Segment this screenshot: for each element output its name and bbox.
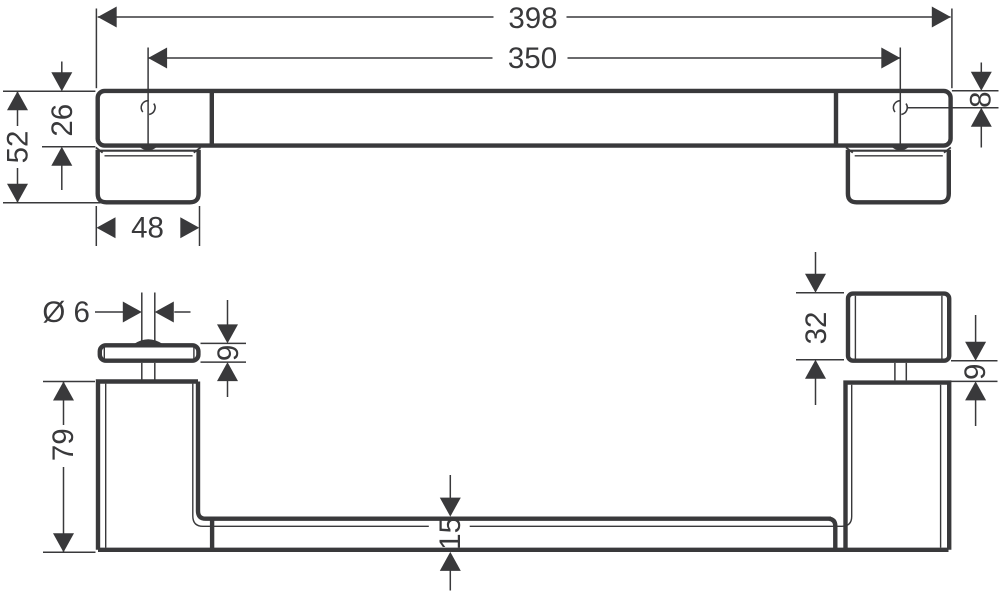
svg-text:Ø 6: Ø 6 (42, 296, 90, 329)
svg-text:52: 52 (2, 131, 35, 164)
svg-text:8: 8 (965, 91, 998, 107)
svg-text:48: 48 (131, 212, 164, 245)
svg-text:15: 15 (434, 517, 467, 550)
svg-text:26: 26 (46, 104, 79, 137)
svg-text:79: 79 (47, 428, 80, 461)
svg-text:32: 32 (800, 312, 833, 345)
svg-text:9: 9 (959, 364, 992, 380)
svg-text:398: 398 (508, 2, 557, 35)
svg-text:350: 350 (508, 42, 557, 75)
svg-text:9: 9 (212, 345, 245, 361)
